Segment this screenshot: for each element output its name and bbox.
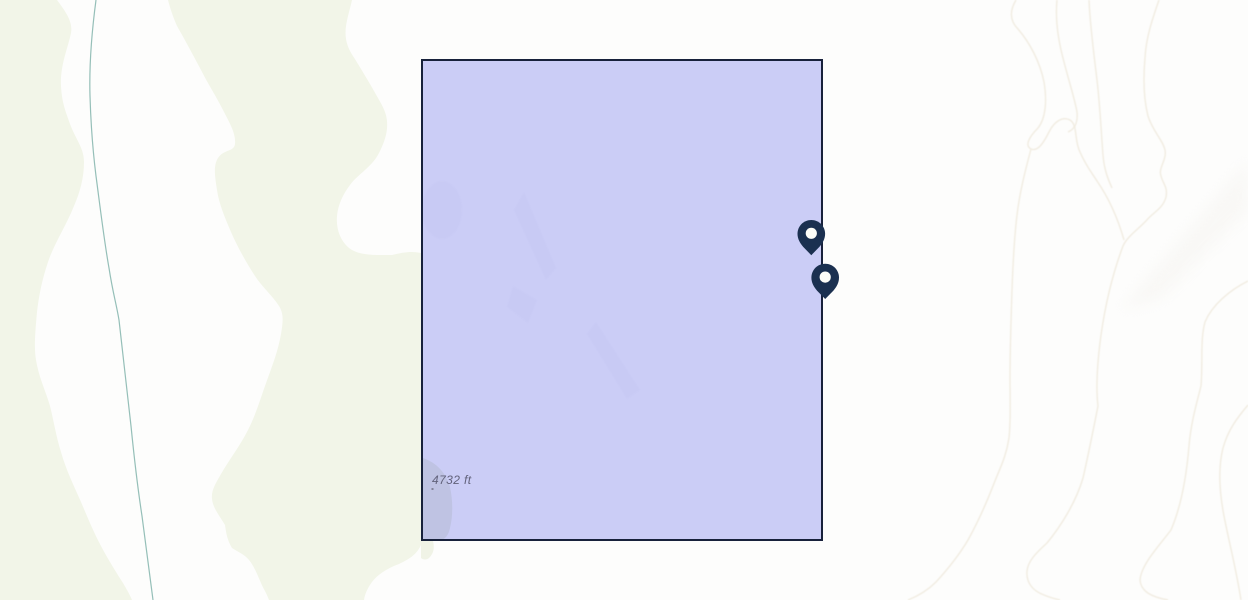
svg-text:4732 ft: 4732 ft (432, 473, 472, 487)
